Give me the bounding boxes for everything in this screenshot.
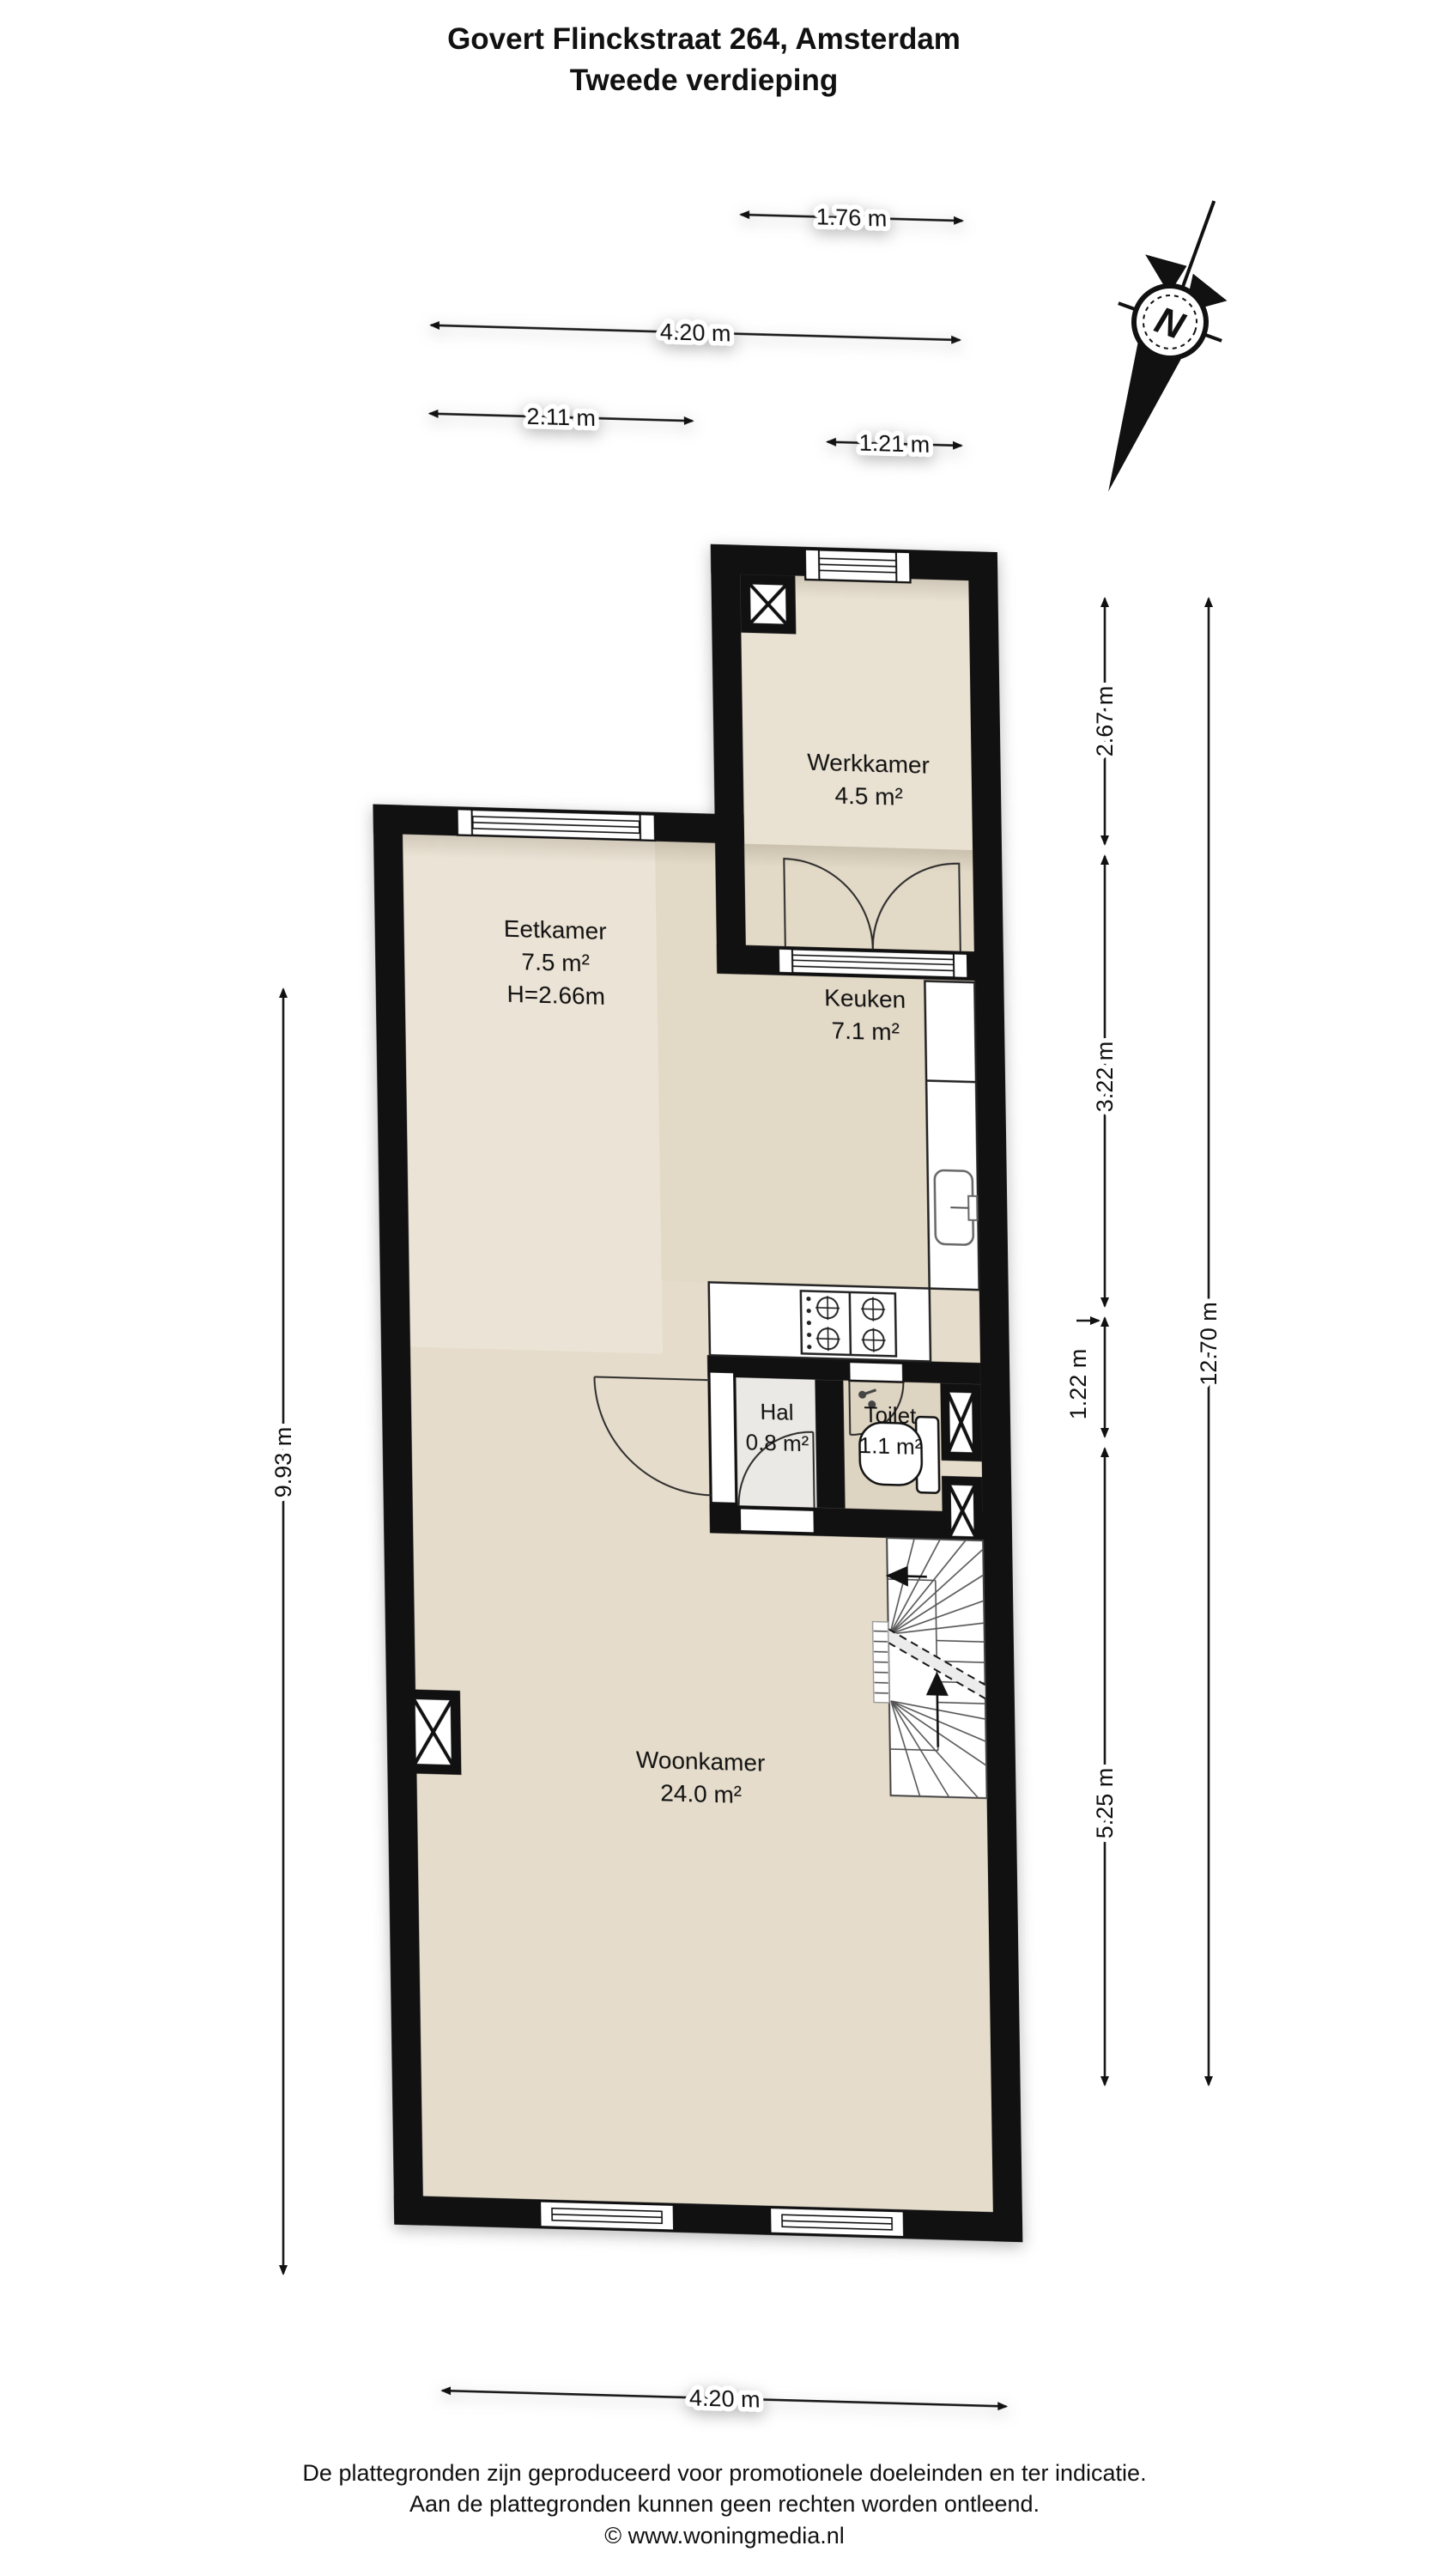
toilet-area: 1.1 m²: [858, 1432, 922, 1460]
dim-right-total: 12.70 m: [1196, 1302, 1222, 1386]
dim-right-woonkamer: 5.25 m: [1092, 1768, 1118, 1839]
eetkamer-height: H=2.66m: [506, 981, 605, 1010]
toilet-shaft-lower: [942, 1476, 983, 1546]
toilet-doorway: [849, 1362, 903, 1382]
dim-right-toilet: 1.22 m: [1065, 1349, 1091, 1420]
dim-top-eetkamer: 2.11 m: [526, 404, 596, 431]
disclaimer-line1: De plattegronden zijn geproduceerd voor …: [0, 2458, 1449, 2488]
werkkamer-area: 4.5 m²: [834, 782, 903, 811]
hal-toilet-divider-wall: [815, 1380, 845, 1509]
keuken-area: 7.1 m²: [831, 1017, 900, 1045]
dim-bottom-width: 4.20 m: [689, 2385, 761, 2412]
hal-label: Hal: [760, 1399, 793, 1425]
disclaimer-line3: © www.woningmedia.nl: [0, 2520, 1449, 2551]
keuken-label: Keuken: [824, 984, 906, 1013]
dim-top-width: 4.20 m: [660, 319, 731, 346]
dim-right-keuken: 3.22 m: [1092, 1042, 1118, 1113]
hal-bottom-doorway: [740, 1508, 815, 1533]
werkkamer-label: Werkkamer: [807, 749, 930, 779]
woonkamer-window-right: [770, 2208, 904, 2237]
werkkamer-shaft: [740, 574, 796, 635]
stair-rail: [873, 1622, 889, 1704]
hal-doorway: [709, 1371, 736, 1504]
disclaimer: De plattegronden zijn geproduceerd voor …: [0, 2458, 1449, 2551]
eetkamer-window: [458, 809, 655, 840]
werkkamer-window: [805, 550, 911, 582]
toilet-label: Toilet: [864, 1401, 917, 1429]
disclaimer-line2: Aan de plattegronden kunnen geen rechten…: [0, 2488, 1449, 2519]
kitchen-faucet-icon: [968, 1196, 977, 1220]
woonkamer-shaft: [405, 1689, 461, 1775]
dim-top-keuken: 1.21 m: [858, 430, 930, 458]
eetkamer-label: Eetkamer: [504, 915, 607, 945]
toilet-shaft-upper: [940, 1383, 981, 1461]
woonkamer-label: Woonkamer: [636, 1747, 766, 1777]
dim-top-werkkamer: 1.76 m: [816, 204, 888, 231]
dim-left-height: 9.93 m: [270, 1427, 296, 1498]
floorplan: Werkkamer 4.5 m² Eetkamer 7.5 m² H=2.66m…: [364, 191, 1026, 2420]
stove-icon: [801, 1291, 896, 1356]
woonkamer-window-left: [540, 2201, 674, 2230]
hal-area: 0.8 m²: [745, 1429, 809, 1456]
floorplan-canvas: Werkkamer 4.5 m² Eetkamer 7.5 m² H=2.66m…: [0, 0, 1449, 2576]
eetkamer-area: 7.5 m²: [521, 948, 590, 976]
woonkamer-area: 24.0 m²: [660, 1779, 742, 1808]
compass-rose: N: [1057, 182, 1265, 510]
eetkamer-floor: [403, 835, 663, 1354]
dim-right-werkkamer: 2.67 m: [1092, 686, 1118, 757]
